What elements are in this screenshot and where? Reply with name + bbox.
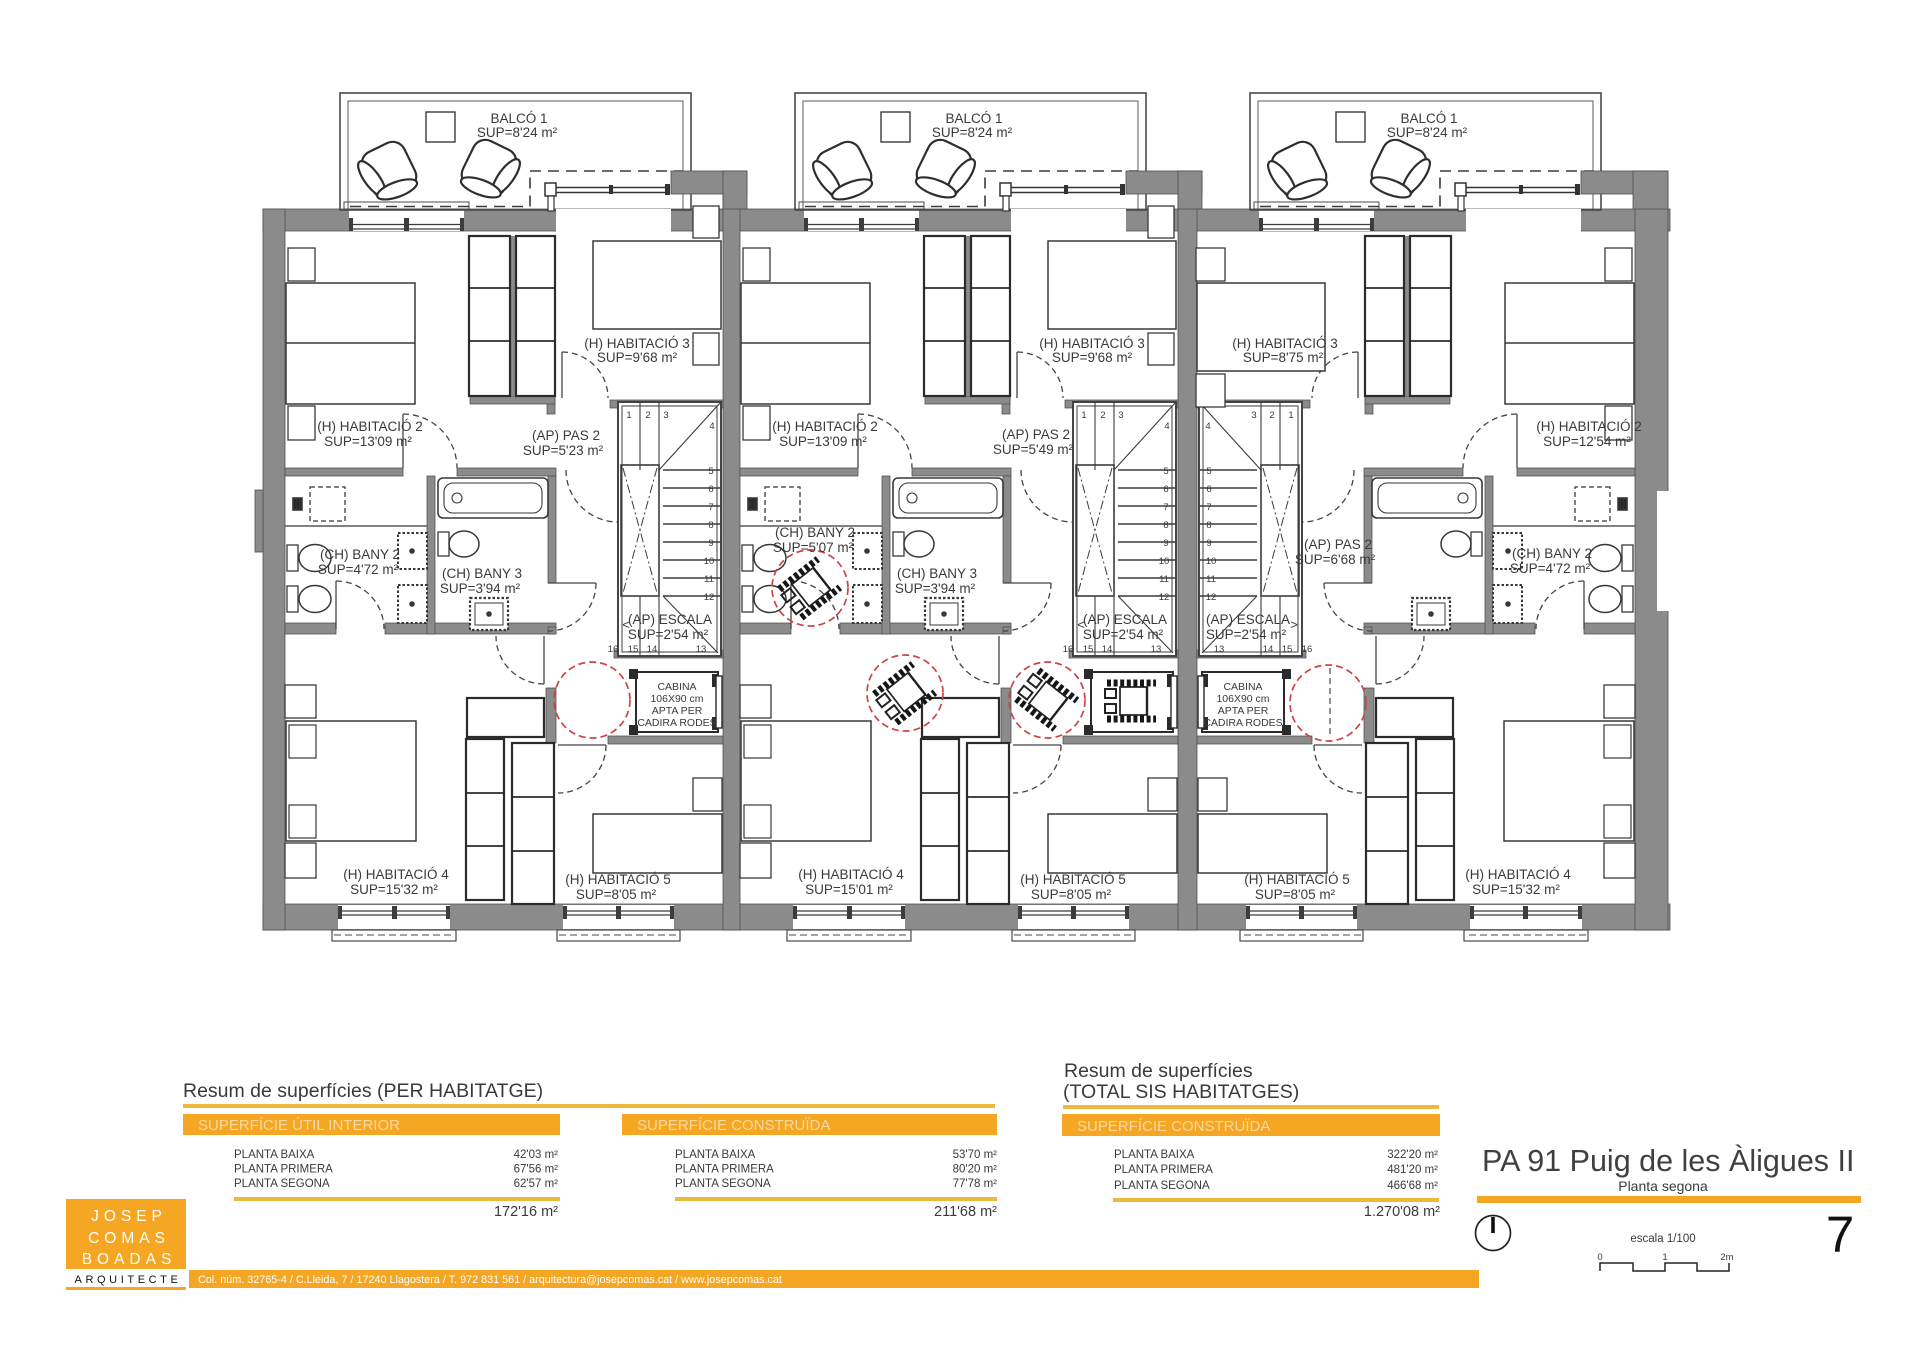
svg-text:PLANTA PRIMERA: PLANTA PRIMERA: [675, 1164, 774, 1176]
svg-text:3: 3: [663, 410, 668, 421]
svg-text:BALCÓ 1: BALCÓ 1: [490, 111, 547, 126]
svg-text:4: 4: [709, 421, 714, 432]
svg-text:(H) HABITACIÓ 5: (H) HABITACIÓ 5: [1020, 872, 1126, 887]
svg-text:106X90 cm: 106X90 cm: [1216, 693, 1269, 705]
svg-text:PLANTA BAIXA: PLANTA BAIXA: [234, 1149, 315, 1161]
svg-text:466'68 m²: 466'68 m²: [1387, 1180, 1438, 1192]
svg-text:5: 5: [1206, 466, 1211, 477]
svg-text:SUP=8'24 m²: SUP=8'24 m²: [477, 125, 558, 140]
svg-text:ARQUITECTE: ARQUITECTE: [75, 1274, 182, 1286]
svg-text:211'68 m²: 211'68 m²: [934, 1204, 997, 1220]
svg-text:SUP=2'54 m²: SUP=2'54 m²: [628, 627, 709, 642]
svg-text:(H) HABITACIÓ 4: (H) HABITACIÓ 4: [798, 867, 904, 882]
svg-text:SUP=13'09 m²: SUP=13'09 m²: [324, 434, 412, 449]
svg-text:(H) HABITACIÓ 4: (H) HABITACIÓ 4: [343, 867, 449, 882]
svg-text:2: 2: [1100, 410, 1105, 421]
svg-text:5: 5: [708, 466, 713, 477]
svg-text:(H) HABITACIÓ 2: (H) HABITACIÓ 2: [772, 419, 878, 434]
svg-text:(CH) BANY 3: (CH) BANY 3: [442, 566, 522, 581]
svg-text:(AP) ESCALA: (AP) ESCALA: [1083, 612, 1167, 627]
svg-text:11: 11: [1159, 574, 1169, 585]
svg-text:SUP=9'68 m²: SUP=9'68 m²: [1052, 350, 1133, 365]
svg-text:8: 8: [1163, 520, 1168, 531]
svg-text:APTA PER: APTA PER: [1218, 705, 1269, 717]
svg-text:CADIRA RODES: CADIRA RODES: [1203, 717, 1282, 729]
svg-text:7: 7: [1826, 1206, 1854, 1263]
svg-text:15: 15: [1083, 644, 1094, 655]
svg-text:15: 15: [1282, 644, 1293, 655]
svg-text:6: 6: [1163, 484, 1168, 495]
svg-text:0: 0: [1597, 1252, 1602, 1263]
svg-text:PLANTA BAIXA: PLANTA BAIXA: [675, 1149, 756, 1161]
svg-text:14: 14: [647, 644, 658, 655]
svg-text:15: 15: [628, 644, 639, 655]
svg-text:9: 9: [1163, 538, 1168, 549]
svg-text:PLANTA SEGONA: PLANTA SEGONA: [675, 1178, 771, 1190]
svg-text:77'78 m²: 77'78 m²: [953, 1178, 998, 1190]
svg-text:SUP=2'54 m²: SUP=2'54 m²: [1206, 627, 1287, 642]
svg-text:BALCÓ 1: BALCÓ 1: [1400, 111, 1457, 126]
svg-text:16: 16: [1302, 644, 1313, 655]
svg-text:1: 1: [1662, 1252, 1667, 1263]
svg-text:(CH) BANY 2: (CH) BANY 2: [775, 525, 855, 540]
svg-text:80'20 m²: 80'20 m²: [953, 1164, 998, 1176]
svg-text:5: 5: [1163, 466, 1168, 477]
svg-text:10: 10: [704, 556, 715, 567]
svg-text:SUP=5'23 m²: SUP=5'23 m²: [523, 443, 604, 458]
svg-text:>: >: [1290, 617, 1298, 632]
svg-text:BOADAS: BOADAS: [82, 1251, 177, 1268]
svg-text:53'70 m²: 53'70 m²: [953, 1149, 998, 1161]
svg-text:13: 13: [1151, 644, 1162, 655]
svg-text:(H) HABITACIÓ 3: (H) HABITACIÓ 3: [1232, 336, 1338, 351]
svg-text:1: 1: [1288, 410, 1293, 421]
svg-text:6: 6: [1206, 484, 1211, 495]
svg-text:(AP) ESCALA: (AP) ESCALA: [1206, 612, 1290, 627]
svg-text:SUP=15'32 m²: SUP=15'32 m²: [350, 882, 438, 897]
svg-text:SUP=4'72 m²: SUP=4'72 m²: [1510, 561, 1591, 576]
svg-text:3: 3: [1251, 410, 1256, 421]
svg-text:(AP) PAS 2: (AP) PAS 2: [1002, 427, 1070, 442]
svg-text:16: 16: [608, 644, 619, 655]
svg-text:(H) HABITACIÓ 4: (H) HABITACIÓ 4: [1465, 867, 1571, 882]
svg-text:SUP=2'54 m²: SUP=2'54 m²: [1083, 627, 1164, 642]
svg-text:6: 6: [708, 484, 713, 495]
svg-text:14: 14: [1102, 644, 1113, 655]
svg-text:11: 11: [704, 574, 714, 585]
svg-text:PLANTA PRIMERA: PLANTA PRIMERA: [1114, 1164, 1213, 1176]
svg-text:(AP) PAS 2: (AP) PAS 2: [1304, 537, 1372, 552]
svg-text:SUP=5'07 m²: SUP=5'07 m²: [773, 540, 854, 555]
svg-text:SUP=8'05 m²: SUP=8'05 m²: [1255, 887, 1336, 902]
svg-text:67'56 m²: 67'56 m²: [514, 1164, 559, 1176]
svg-text:12: 12: [704, 592, 715, 603]
svg-text:14: 14: [1263, 644, 1274, 655]
svg-text:SUP=3'94 m²: SUP=3'94 m²: [895, 581, 976, 596]
svg-text:SUPERFÍCIE CONSTRUÏDA: SUPERFÍCIE CONSTRUÏDA: [637, 1117, 830, 1134]
svg-text:13: 13: [1214, 644, 1225, 655]
svg-text:106X90 cm: 106X90 cm: [650, 693, 703, 705]
svg-text:(H) HABITACIÓ 2: (H) HABITACIÓ 2: [1536, 419, 1642, 434]
svg-text:<: <: [622, 617, 630, 632]
svg-text:9: 9: [1206, 538, 1211, 549]
svg-text:SUP=9'68 m²: SUP=9'68 m²: [597, 350, 678, 365]
svg-text:APTA PER: APTA PER: [652, 705, 703, 717]
svg-text:9: 9: [708, 538, 713, 549]
svg-text:CABINA: CABINA: [1223, 681, 1262, 693]
svg-text:1.270'08 m²: 1.270'08 m²: [1364, 1204, 1440, 1220]
svg-text:SUP=12'54 m²: SUP=12'54 m²: [1543, 434, 1631, 449]
svg-text:CADIRA RODES: CADIRA RODES: [637, 717, 716, 729]
svg-text:(TOTAL SIS HABITATGES): (TOTAL SIS HABITATGES): [1063, 1081, 1299, 1103]
svg-text:SUP=5'49 m²: SUP=5'49 m²: [993, 442, 1074, 457]
svg-text:3: 3: [1118, 410, 1123, 421]
svg-text:SUP=8'75 m²: SUP=8'75 m²: [1243, 350, 1324, 365]
svg-text:PLANTA SEGONA: PLANTA SEGONA: [234, 1178, 330, 1190]
svg-text:SUP=6'68 m²: SUP=6'68 m²: [1295, 552, 1376, 567]
svg-text:Resum de superfícies: Resum de superfícies: [1064, 1060, 1253, 1082]
svg-text:Col. núm. 32765-4 / C.Lleida,: Col. núm. 32765-4 / C.Lleida, 7 / 17240 …: [198, 1274, 782, 1286]
svg-text:Planta segona: Planta segona: [1618, 1178, 1708, 1194]
svg-text:172'16 m²: 172'16 m²: [494, 1204, 558, 1220]
svg-text:10: 10: [1159, 556, 1170, 567]
svg-text:4: 4: [1164, 421, 1169, 432]
svg-text:SUP=13'09 m²: SUP=13'09 m²: [779, 434, 867, 449]
svg-text:322'20 m²: 322'20 m²: [1387, 1149, 1438, 1161]
svg-text:11: 11: [1206, 574, 1216, 585]
svg-text:PA 91 Puig de les Àligues II: PA 91 Puig de les Àligues II: [1482, 1143, 1854, 1178]
svg-text:13: 13: [696, 644, 707, 655]
svg-text:PLANTA PRIMERA: PLANTA PRIMERA: [234, 1164, 333, 1176]
svg-text:(AP) PAS 2: (AP) PAS 2: [532, 428, 600, 443]
svg-text:PLANTA BAIXA: PLANTA BAIXA: [1114, 1149, 1195, 1161]
svg-text:COMAS: COMAS: [88, 1230, 170, 1247]
svg-text:62'57 m²: 62'57 m²: [514, 1178, 559, 1190]
svg-text:1: 1: [626, 410, 631, 421]
svg-text:2: 2: [645, 410, 650, 421]
svg-text:1: 1: [1081, 410, 1086, 421]
svg-text:SUP=8'05 m²: SUP=8'05 m²: [576, 887, 657, 902]
svg-text:(H) HABITACIÓ 2: (H) HABITACIÓ 2: [317, 419, 423, 434]
svg-text:7: 7: [1206, 502, 1211, 513]
svg-text:481'20 m²: 481'20 m²: [1387, 1164, 1438, 1176]
svg-text:4: 4: [1205, 421, 1210, 432]
svg-text:12: 12: [1159, 592, 1170, 603]
svg-text:(CH) BANY 3: (CH) BANY 3: [897, 566, 977, 581]
svg-text:(H) HABITACIÓ 5: (H) HABITACIÓ 5: [1244, 872, 1350, 887]
svg-text:10: 10: [1206, 556, 1217, 567]
svg-text:BALCÓ 1: BALCÓ 1: [945, 111, 1002, 126]
svg-text:CABINA: CABINA: [657, 681, 696, 693]
svg-text:8: 8: [708, 520, 713, 531]
svg-text:16: 16: [1063, 644, 1074, 655]
svg-text:SUP=8'05 m²: SUP=8'05 m²: [1031, 887, 1112, 902]
svg-text:SUPERFÍCIE ÚTIL INTERIOR: SUPERFÍCIE ÚTIL INTERIOR: [198, 1117, 400, 1134]
svg-text:8: 8: [1206, 520, 1211, 531]
svg-text:2m: 2m: [1720, 1252, 1733, 1263]
svg-text:SUPERFÍCIE CONSTRUÏDA: SUPERFÍCIE CONSTRUÏDA: [1077, 1118, 1270, 1135]
svg-text:(H) HABITACIÓ 3: (H) HABITACIÓ 3: [1039, 336, 1145, 351]
svg-text:SUP=4'72 m²: SUP=4'72 m²: [318, 562, 399, 577]
svg-text:SUP=15'32 m²: SUP=15'32 m²: [1472, 882, 1560, 897]
svg-text:(AP) ESCALA: (AP) ESCALA: [628, 612, 712, 627]
svg-text:escala 1/100: escala 1/100: [1630, 1233, 1695, 1245]
svg-text:SUP=8'24 m²: SUP=8'24 m²: [1387, 125, 1468, 140]
svg-text:PLANTA SEGONA: PLANTA SEGONA: [1114, 1180, 1210, 1192]
svg-text:12: 12: [1206, 592, 1217, 603]
svg-text:Resum de superfícies (PER HABI: Resum de superfícies (PER HABITATGE): [183, 1080, 543, 1102]
svg-text:<: <: [1077, 617, 1085, 632]
svg-text:(CH) BANY 2: (CH) BANY 2: [320, 547, 400, 562]
svg-text:(H) HABITACIÓ 3: (H) HABITACIÓ 3: [584, 336, 690, 351]
svg-text:SUP=8'24 m²: SUP=8'24 m²: [932, 125, 1013, 140]
svg-text:(H) HABITACIÓ 5: (H) HABITACIÓ 5: [565, 872, 671, 887]
svg-text:(CH) BANY 2: (CH) BANY 2: [1512, 546, 1592, 561]
svg-text:SUP=15'01 m²: SUP=15'01 m²: [805, 882, 893, 897]
svg-text:7: 7: [708, 502, 713, 513]
svg-text:2: 2: [1269, 410, 1274, 421]
svg-text:SUP=3'94 m²: SUP=3'94 m²: [440, 581, 521, 596]
svg-text:42'03 m²: 42'03 m²: [514, 1149, 559, 1161]
svg-text:7: 7: [1163, 502, 1168, 513]
svg-text:JOSEP: JOSEP: [91, 1208, 167, 1225]
